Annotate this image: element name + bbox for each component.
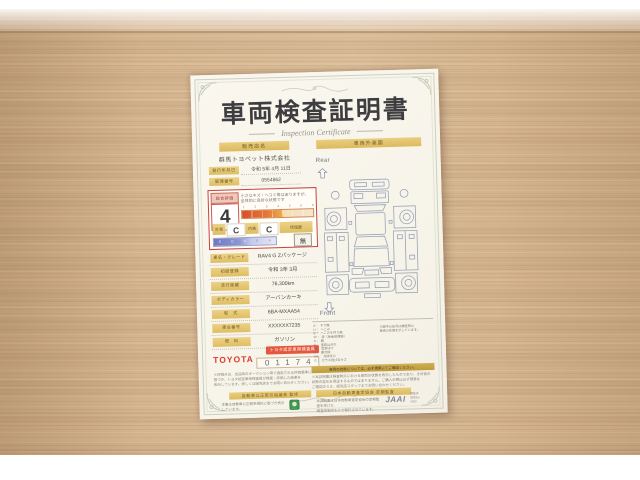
evaluation-header: 総合評価 bbox=[211, 192, 239, 204]
footer-right-note: 本証明書は日本自動車査定協会の定期監査を受けた 検査体制のもとで発行されています… bbox=[316, 397, 382, 414]
rear-arrow-icon bbox=[317, 166, 328, 178]
evaluation-note: 小さなキズ・ヘコミ等はありますが、 全体的に良好な状態です bbox=[241, 191, 313, 204]
car-exterior-diagram bbox=[319, 176, 422, 301]
scale-tick: 5 bbox=[289, 204, 291, 208]
interior-label: 内装 bbox=[245, 223, 258, 234]
detail-value: RAV4 G Zパッケージ bbox=[249, 249, 315, 264]
grade-scale-bar: E D C B A bbox=[213, 236, 277, 247]
score-scale-bar bbox=[241, 208, 314, 219]
detail-label: ボディカラー bbox=[211, 295, 249, 305]
repair-history-value: 無 bbox=[294, 233, 312, 246]
scale-tick: S bbox=[312, 203, 314, 207]
detail-label: 車名・グレード bbox=[210, 253, 248, 263]
inspector-badge: トヨタ認定車両検査員 bbox=[266, 345, 319, 354]
scale-tick: 3 bbox=[266, 204, 268, 208]
scale-tick: 2 bbox=[254, 205, 256, 209]
footer-left-note: 本書は自動車公正競争規約に基づき表示しています。 bbox=[221, 401, 287, 413]
detail-value: 令和 3年 3月 bbox=[250, 263, 316, 278]
rear-label: Rear bbox=[316, 158, 330, 164]
wood-plank-seam bbox=[0, 450, 640, 451]
interior-grade: C bbox=[259, 222, 278, 236]
scale-tick: 1 bbox=[243, 205, 245, 209]
grade-tick: C bbox=[239, 238, 252, 245]
scale-tick: 4 bbox=[277, 204, 279, 208]
detail-value: XXXXXX7235 bbox=[251, 319, 317, 334]
front-label: Front bbox=[320, 311, 336, 317]
subtitle-rule bbox=[249, 133, 275, 135]
footer-stamp: 検査済 認定No. 0000 bbox=[410, 392, 435, 405]
repair-history-label: 修復歴 bbox=[279, 221, 312, 233]
dealer-name: 群馬トヨペット株式会社 bbox=[206, 152, 302, 164]
grade-tick: B bbox=[251, 238, 264, 245]
detail-label: 初度登録 bbox=[211, 267, 249, 277]
grade-tick: E bbox=[214, 239, 227, 246]
stamp-line: 0000 bbox=[410, 400, 435, 405]
control-number-value: 0554862 bbox=[241, 175, 301, 186]
fineprint-line: 本書は自動車公正競争規約に基づき表示しています。 bbox=[221, 401, 287, 413]
detail-label: 型 式 bbox=[212, 309, 250, 319]
wood-table-photo: 車両検査証明書 Inspection Certificate 販売店名 群馬トヨ… bbox=[0, 9, 640, 455]
detail-value: 76,300km bbox=[250, 277, 316, 292]
exterior-grade: C bbox=[226, 223, 245, 237]
wood-plank-seam bbox=[0, 31, 640, 33]
green-association-logo bbox=[289, 400, 299, 410]
detail-value: アーバンカーキ bbox=[250, 291, 316, 306]
detail-label: 燃 料 bbox=[213, 337, 251, 347]
condition-notice-text: 車両の状態については、必ず現車にてご確認ください。 bbox=[329, 364, 416, 371]
left-fineprint: ※評価点は、出品時のオークション等で適用される評価基準に 基づき、トヨタ認定車両… bbox=[214, 370, 319, 388]
issue-date-label: 発行年月日 bbox=[209, 166, 239, 175]
scale-tick: 6 bbox=[300, 203, 302, 207]
overall-evaluation-box: 総合評価 4 小さなキズ・ヘコミ等はありますが、 全体的に良好な状態です 1 2… bbox=[207, 187, 318, 250]
grade-tick: A bbox=[263, 237, 276, 244]
toyota-logo: TOYOTA bbox=[213, 354, 254, 365]
subtitle-text: Inspection Certificate bbox=[281, 127, 351, 138]
subtitle-rule bbox=[357, 130, 383, 132]
exterior-label: 外装 bbox=[212, 224, 225, 235]
detail-label: 車台番号 bbox=[212, 323, 250, 333]
legend-note: ※図中の記号は検査時の 車両の状態を示しています。 bbox=[379, 324, 433, 334]
inspector-number: 01174 bbox=[256, 356, 319, 369]
fineprint-line: 検査体制のもとで発行されています。 bbox=[317, 407, 383, 414]
screenshot: 車両検査証明書 Inspection Certificate 販売店名 群馬トヨ… bbox=[0, 0, 640, 480]
damage-legend: A ： すり傷 U ： へこみ B ： へこみを伴う傷 W ： 波（板金修理跡）… bbox=[313, 322, 379, 362]
vehicle-details-table: 車名・グレード RAV4 G Zパッケージ 初度登録 令和 3年 3月 走行距離… bbox=[209, 249, 319, 350]
legend-item: G ： ガラス飛び石キズ bbox=[314, 357, 379, 363]
legend-note-line: 車両の状態を示しています。 bbox=[379, 328, 433, 334]
issue-date-value: 令和 5年 4月 11日 bbox=[241, 164, 301, 175]
detail-value: 6BA-MXAA54 bbox=[251, 305, 317, 320]
control-number-label: 管理番号 bbox=[209, 177, 239, 186]
grade-tick: D bbox=[226, 238, 239, 245]
detail-label: 走行距離 bbox=[211, 281, 249, 291]
dealer-header-bar: 販売店名 bbox=[219, 141, 289, 152]
diagram-header-bar: 車両外装図 bbox=[316, 137, 421, 149]
jaai-logo: JAAI bbox=[385, 395, 405, 405]
certificate-paper: 車両検査証明書 Inspection Certificate 販売店名 群馬トヨ… bbox=[190, 69, 448, 420]
